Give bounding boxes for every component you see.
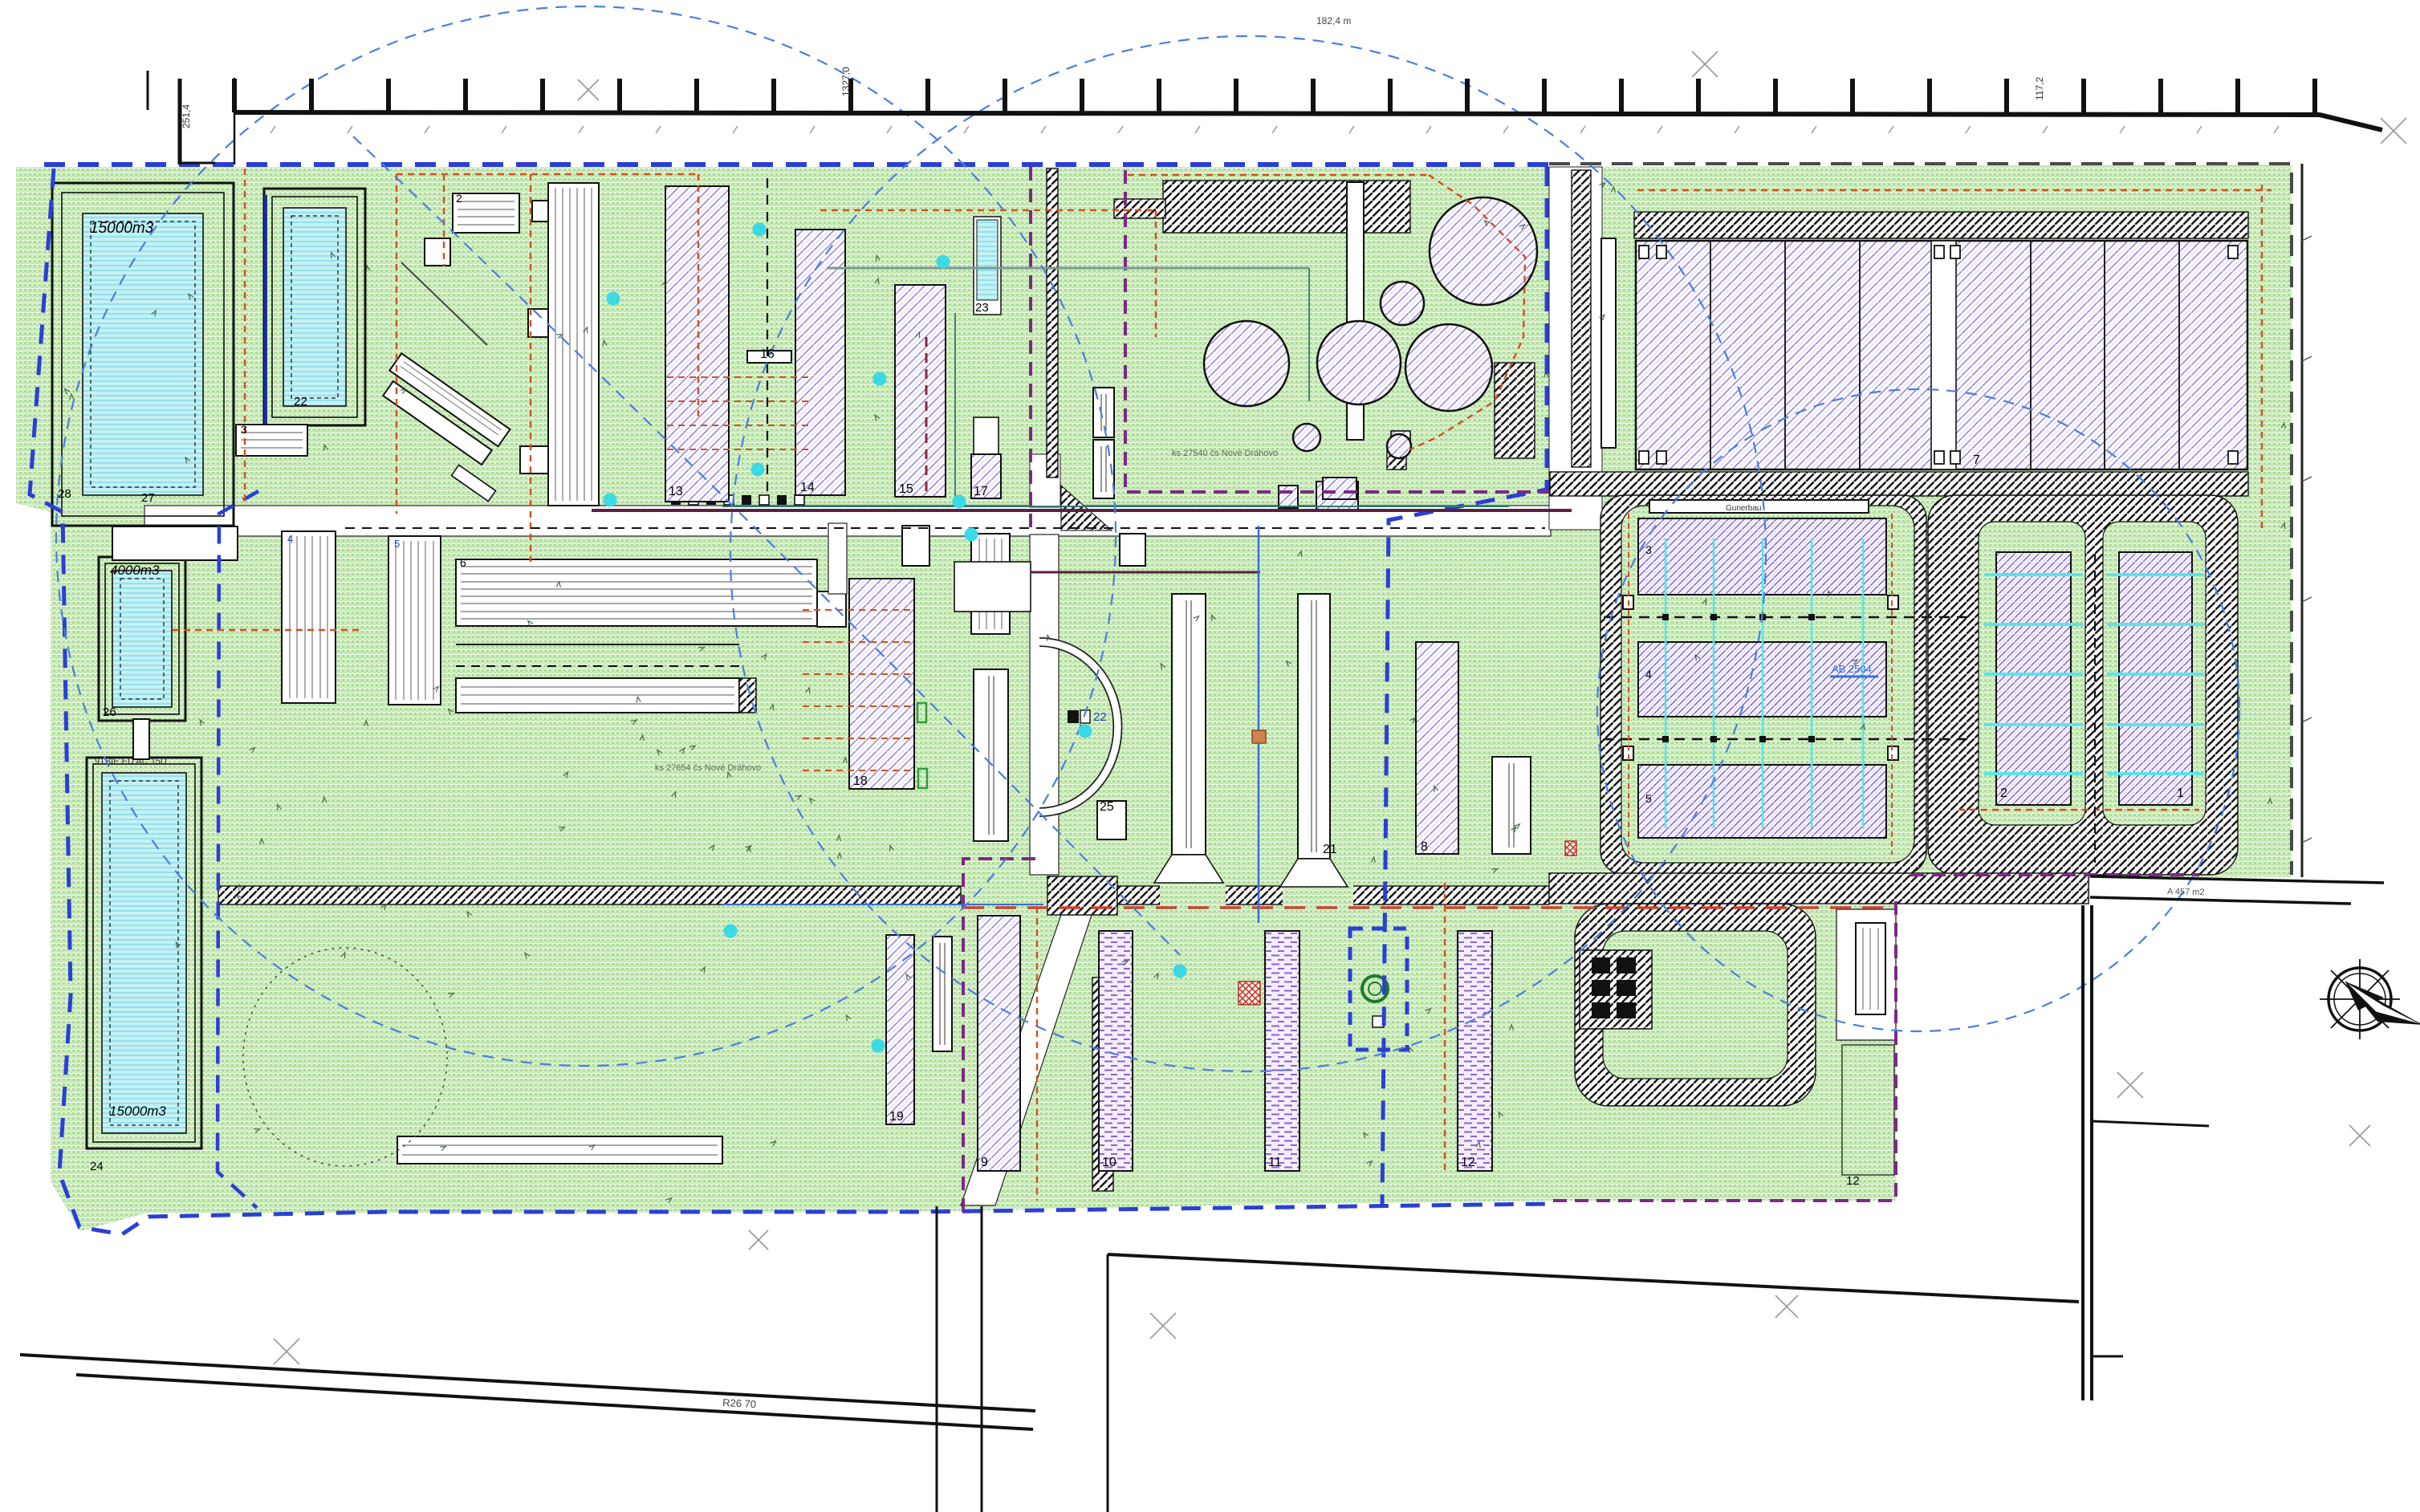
svg-text:5: 5 (394, 538, 400, 550)
svg-text:1327,0: 1327,0 (840, 67, 852, 96)
svg-text:ks 27540 čs Nové Dráhovo: ks 27540 čs Nové Dráhovo (1172, 449, 1278, 458)
svg-text:1: 1 (2177, 786, 2184, 800)
svg-text:6: 6 (460, 556, 466, 569)
svg-text:28: 28 (58, 487, 71, 501)
svg-text:24: 24 (90, 1160, 104, 1173)
svg-text:15000m3: 15000m3 (109, 1104, 166, 1119)
svg-text:12: 12 (1846, 1174, 1860, 1188)
svg-text:17: 17 (974, 485, 988, 498)
svg-text:9: 9 (981, 1156, 988, 1169)
svg-text:11: 11 (1268, 1156, 1282, 1169)
svg-text:2: 2 (456, 192, 462, 205)
svg-text:10: 10 (1102, 1156, 1116, 1169)
svg-text:182,4 m: 182,4 m (1316, 15, 1351, 26)
svg-text:15: 15 (899, 482, 913, 496)
svg-text:2: 2 (2000, 786, 2007, 800)
svg-text:19: 19 (889, 1110, 904, 1124)
svg-text:13: 13 (669, 485, 683, 498)
svg-text:22: 22 (294, 395, 307, 408)
svg-text:AB 2504: AB 2504 (1832, 663, 1872, 675)
svg-text:251,4: 251,4 (181, 104, 192, 128)
svg-text:8: 8 (1421, 840, 1428, 854)
svg-text:23: 23 (975, 301, 989, 315)
svg-text:22: 22 (1093, 710, 1107, 724)
svg-text:Gunerbau: Gunerbau (1726, 504, 1761, 513)
svg-text:R26 70: R26 70 (722, 1396, 757, 1410)
svg-text:3: 3 (241, 423, 247, 436)
svg-text:27: 27 (141, 491, 155, 505)
svg-text:18: 18 (853, 774, 868, 788)
svg-text:15000m3: 15000m3 (90, 220, 154, 237)
svg-text:26: 26 (103, 705, 116, 719)
svg-text:4000m3: 4000m3 (110, 563, 160, 578)
svg-text:117,2: 117,2 (2034, 77, 2045, 100)
svg-text:14: 14 (800, 481, 815, 494)
svg-text:21: 21 (1323, 843, 1337, 856)
svg-text:16: 16 (760, 348, 775, 361)
svg-text:7: 7 (1973, 453, 1980, 467)
svg-text:4: 4 (1645, 668, 1652, 681)
svg-text:5: 5 (1645, 792, 1652, 805)
svg-text:ks 27654 čs Nové Dráhovo: ks 27654 čs Nové Dráhovo (655, 763, 761, 773)
svg-text:12: 12 (1461, 1156, 1475, 1169)
svg-text:A 457 m2: A 457 m2 (2167, 887, 2205, 897)
svg-text:4: 4 (287, 533, 293, 545)
svg-text:25: 25 (1100, 800, 1114, 814)
svg-text:3: 3 (1645, 543, 1652, 556)
